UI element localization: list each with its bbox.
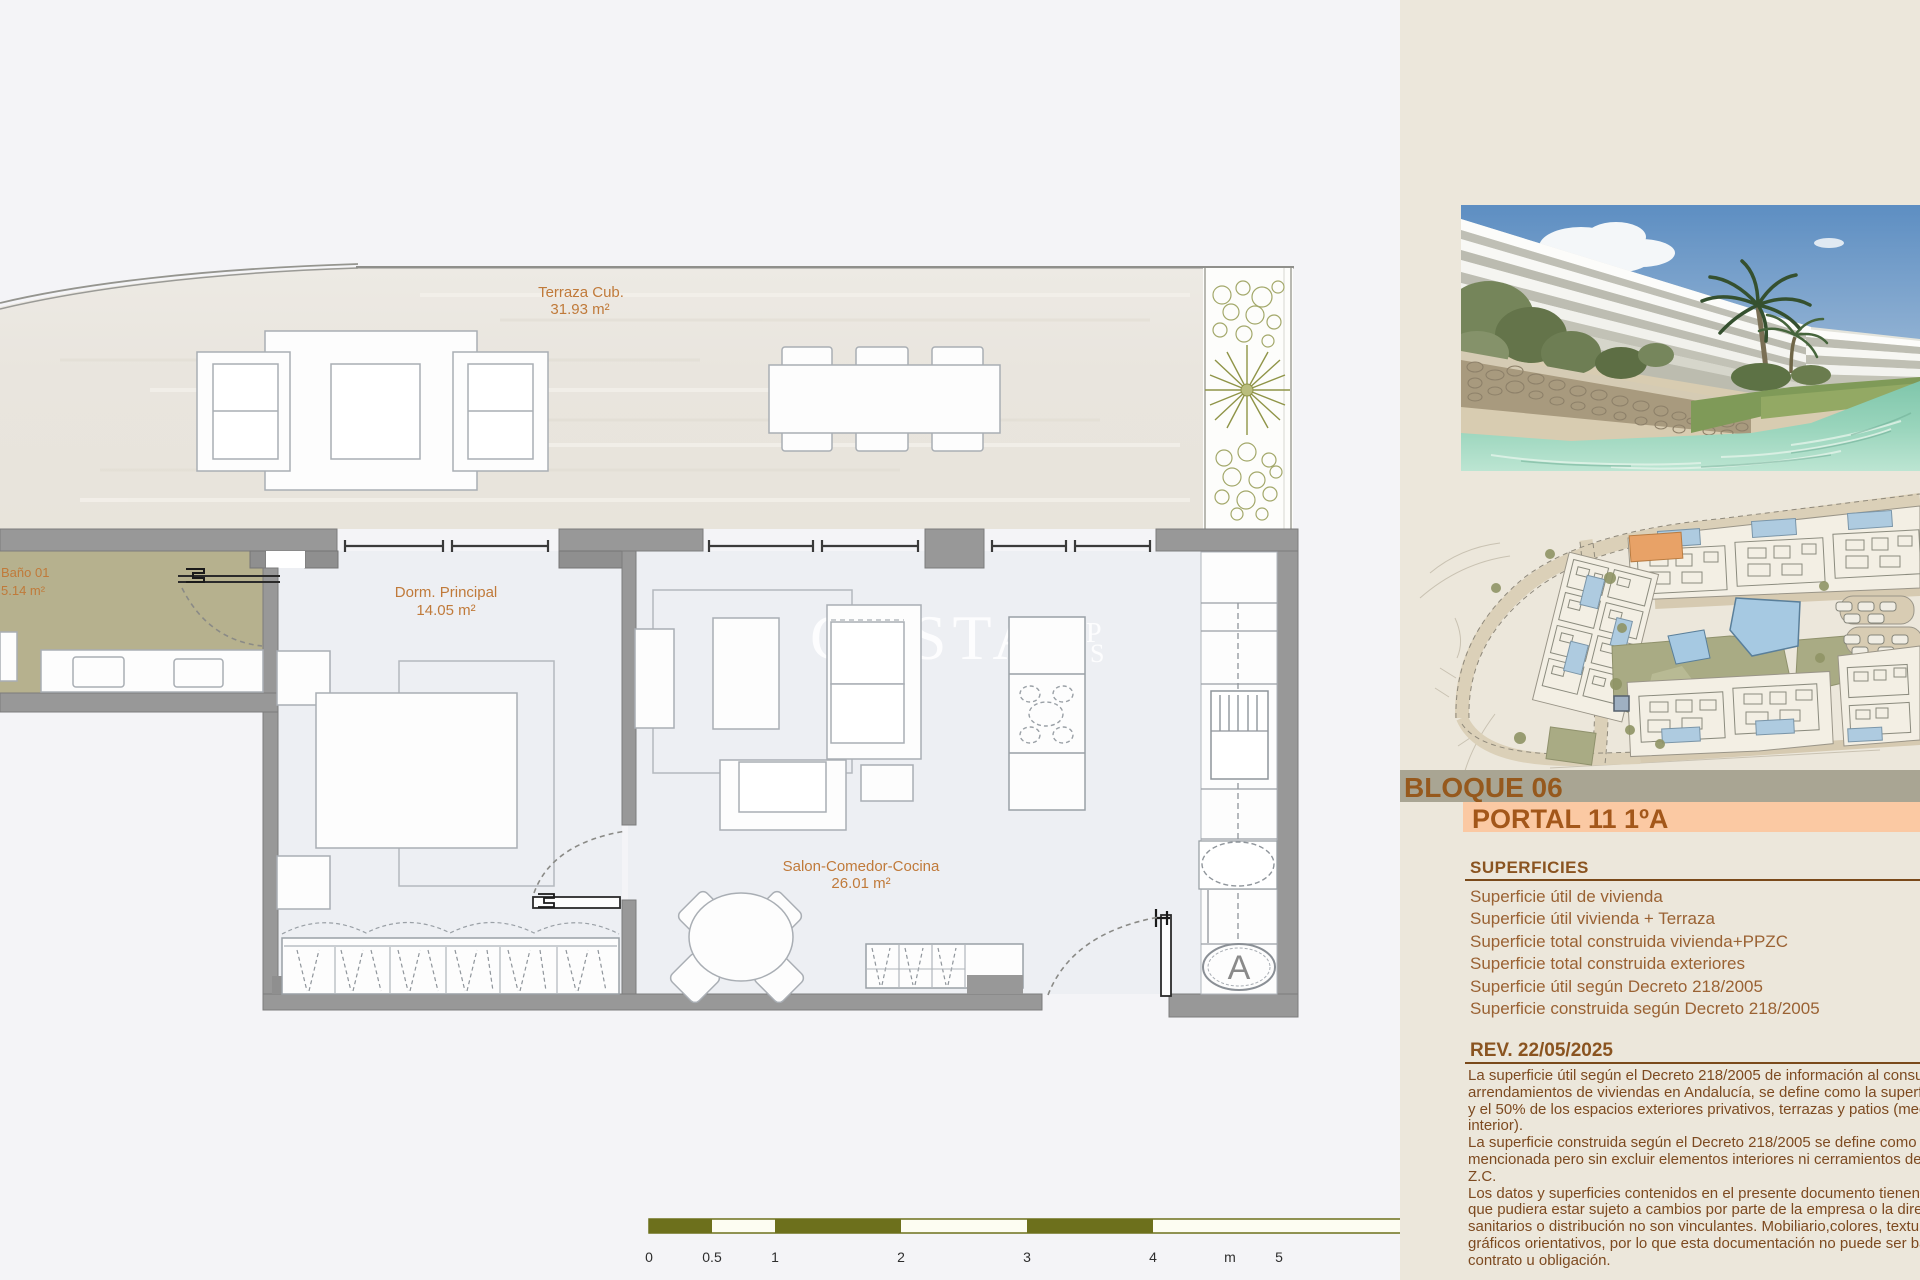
svg-text:0: 0: [645, 1249, 653, 1265]
svg-text:1: 1: [771, 1249, 779, 1265]
svg-text:Salon-Comedor-Cocina: Salon-Comedor-Cocina: [783, 858, 940, 875]
svg-text:31.93 m²: 31.93 m²: [550, 301, 609, 318]
svg-text:0.5: 0.5: [702, 1249, 722, 1265]
svg-text:3: 3: [1023, 1249, 1031, 1265]
svg-text:S: S: [1090, 639, 1104, 668]
svg-text:5: 5: [1275, 1249, 1283, 1265]
svg-text:m: m: [1224, 1249, 1236, 1265]
svg-text:26.01 m²: 26.01 m²: [831, 875, 890, 892]
svg-text:4: 4: [1149, 1249, 1157, 1265]
svg-text:2: 2: [897, 1249, 905, 1265]
svg-text:A: A: [1228, 949, 1251, 987]
svg-text:Terraza Cub.: Terraza Cub.: [538, 284, 624, 301]
svg-text:Baño 01: Baño 01: [1, 565, 49, 580]
svg-text:Dorm. Principal: Dorm. Principal: [395, 584, 498, 601]
svg-text:14.05 m²: 14.05 m²: [416, 602, 475, 619]
svg-text:5.14 m²: 5.14 m²: [1, 583, 46, 598]
